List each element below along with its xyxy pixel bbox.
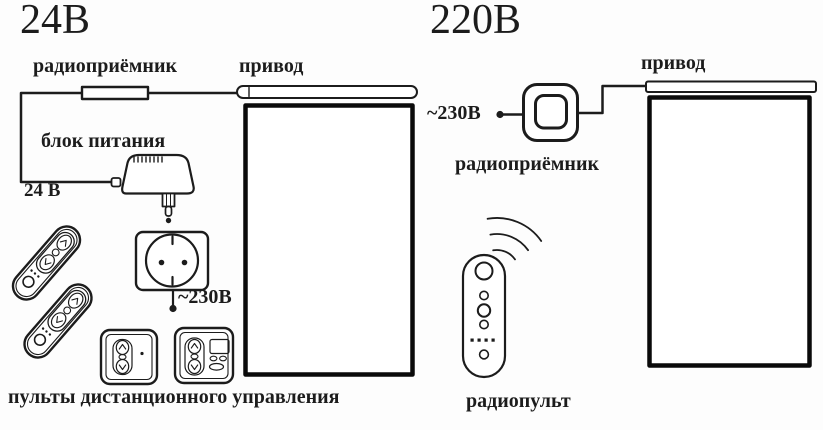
label-drive-left: привод	[239, 56, 303, 77]
plug-icon	[163, 194, 175, 224]
label-230v-left: ~230В	[178, 287, 232, 308]
label-drive-right: привод	[641, 53, 705, 74]
title-220v: 220В	[430, 0, 521, 42]
wall-remote-simple	[101, 330, 157, 384]
wall-socket	[136, 232, 208, 290]
title-24v: 24В	[20, 0, 90, 42]
radio-waves-icon	[488, 218, 542, 259]
drive-tube	[646, 82, 816, 93]
drive-tube	[237, 86, 417, 98]
label-24v-wire: 24 В	[24, 181, 60, 201]
wiring-diagram-page: 24В радиоприёмник привод блок питания 24…	[0, 0, 823, 430]
socket-feed-wire	[169, 290, 176, 312]
label-230v-right: ~230В	[427, 103, 481, 124]
radio-remote	[463, 255, 505, 377]
label-receiver-left: радиоприёмник	[33, 56, 177, 77]
caption-remotes: пульты дистанционного управления	[8, 387, 339, 408]
power-adapter	[112, 155, 194, 223]
wall-remote-display	[175, 328, 233, 383]
label-radio-remote: радиопульт	[466, 391, 571, 412]
right-diagram	[463, 82, 816, 378]
radio-receiver-box	[82, 87, 148, 99]
label-receiver-right: радиоприёмник	[455, 154, 599, 175]
label-power-supply: блок питания	[41, 131, 165, 152]
radio-receiver-module	[524, 85, 578, 141]
blind-screen	[246, 106, 413, 375]
blind-screen	[650, 98, 810, 366]
